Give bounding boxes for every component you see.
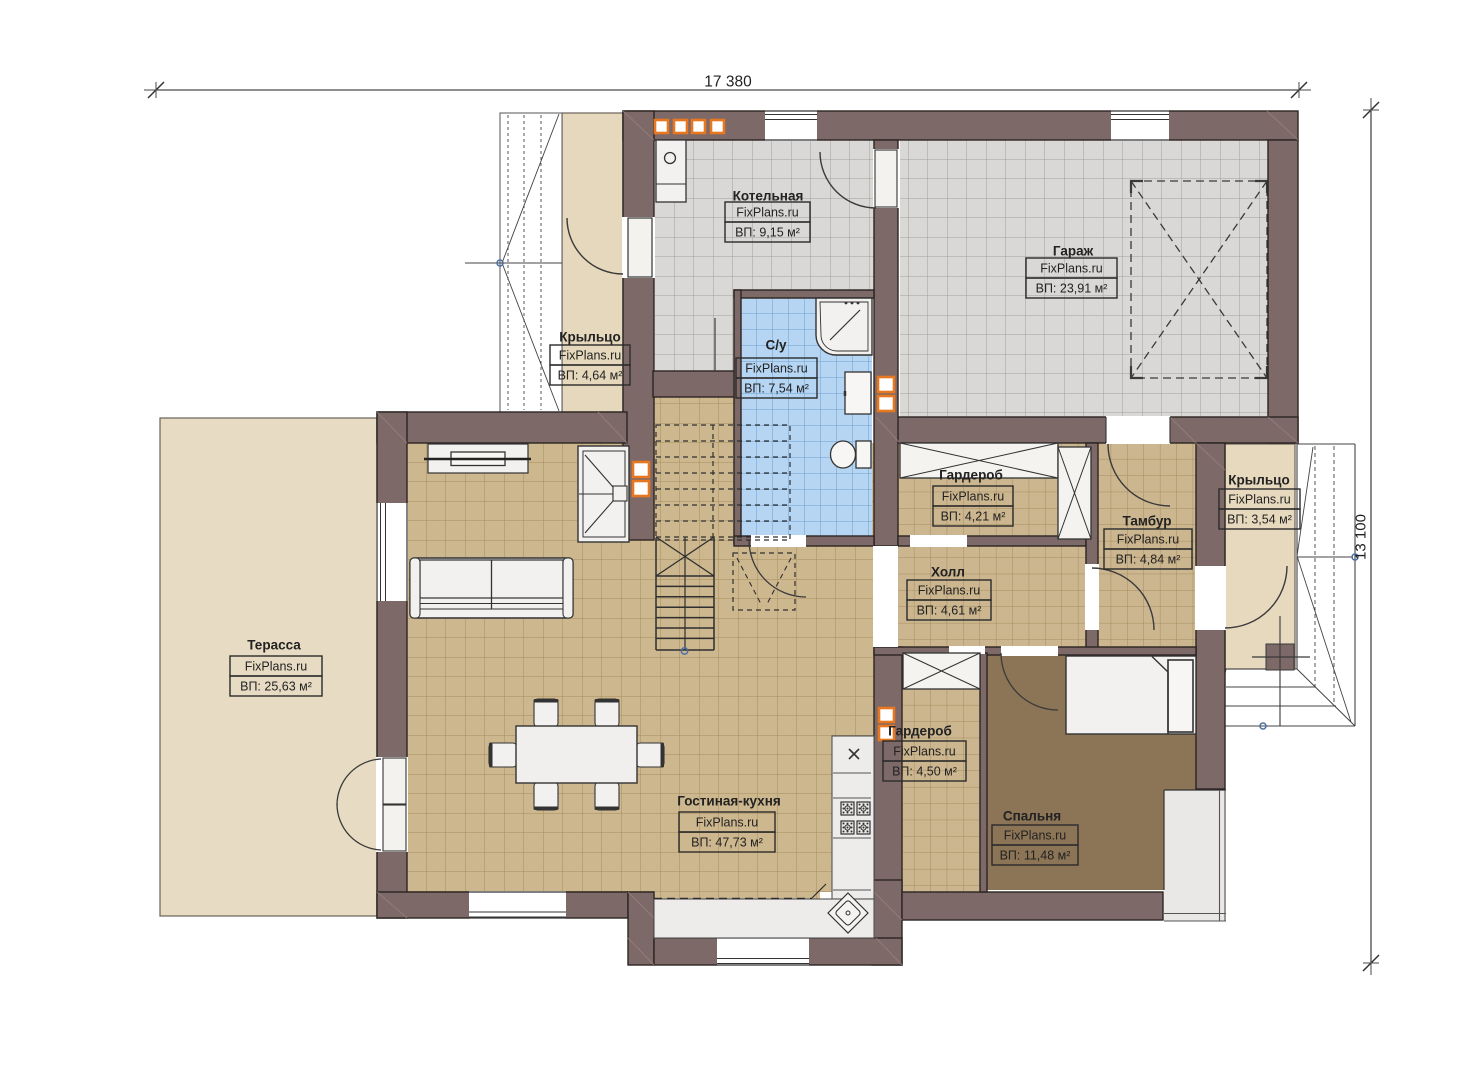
svg-text:13 100: 13 100 (1353, 514, 1370, 560)
svg-text:ВП: 25,63 м²: ВП: 25,63 м² (240, 680, 312, 694)
svg-text:Спальня: Спальня (1003, 809, 1061, 824)
svg-text:ВП: 3,54 м²: ВП: 3,54 м² (1227, 513, 1292, 527)
svg-text:Холл: Холл (931, 565, 965, 580)
svg-text:FixPlans.ru: FixPlans.ru (1117, 533, 1180, 547)
svg-text:FixPlans.ru: FixPlans.ru (893, 745, 956, 759)
svg-text:FixPlans.ru: FixPlans.ru (559, 349, 622, 363)
svg-text:С/у: С/у (765, 338, 787, 353)
svg-text:ВП: 4,21 м²: ВП: 4,21 м² (941, 510, 1006, 524)
svg-text:Гардероб: Гардероб (939, 468, 1003, 483)
svg-text:Гардероб: Гардероб (888, 724, 952, 739)
svg-text:FixPlans.ru: FixPlans.ru (245, 660, 308, 674)
svg-text:FixPlans.ru: FixPlans.ru (1040, 262, 1103, 276)
svg-text:ВП: 9,15 м²: ВП: 9,15 м² (735, 226, 800, 240)
svg-text:ВП: 4,64 м²: ВП: 4,64 м² (558, 369, 623, 383)
svg-text:Гостиная-кухня: Гостиная-кухня (677, 794, 780, 809)
svg-text:FixPlans.ru: FixPlans.ru (942, 490, 1005, 504)
svg-text:Гараж: Гараж (1053, 244, 1094, 259)
svg-text:17 380: 17 380 (704, 74, 752, 91)
svg-text:Котельная: Котельная (733, 189, 804, 204)
svg-text:ВП: 23,91 м²: ВП: 23,91 м² (1036, 282, 1108, 296)
svg-text:ВП: 11,48 м²: ВП: 11,48 м² (1000, 849, 1071, 863)
svg-text:Терасса: Терасса (247, 638, 301, 653)
svg-text:ВП: 4,84 м²: ВП: 4,84 м² (1116, 553, 1181, 567)
svg-text:Тамбур: Тамбур (1123, 514, 1172, 529)
svg-text:FixPlans.ru: FixPlans.ru (736, 206, 799, 220)
svg-text:FixPlans.ru: FixPlans.ru (745, 362, 808, 376)
svg-text:Крыльцо: Крыльцо (1228, 473, 1289, 488)
svg-text:ВП: 7,54 м²: ВП: 7,54 м² (744, 382, 809, 396)
svg-text:FixPlans.ru: FixPlans.ru (696, 816, 759, 830)
svg-text:ВП: 4,61 м²: ВП: 4,61 м² (917, 604, 982, 618)
svg-text:FixPlans.ru: FixPlans.ru (1004, 829, 1067, 843)
svg-text:ВП: 4,50 м²: ВП: 4,50 м² (892, 765, 957, 779)
svg-text:Крыльцо: Крыльцо (559, 330, 620, 345)
svg-text:FixPlans.ru: FixPlans.ru (918, 584, 981, 598)
svg-text:ВП: 47,73 м²: ВП: 47,73 м² (691, 836, 763, 850)
svg-text:FixPlans.ru: FixPlans.ru (1228, 493, 1291, 507)
